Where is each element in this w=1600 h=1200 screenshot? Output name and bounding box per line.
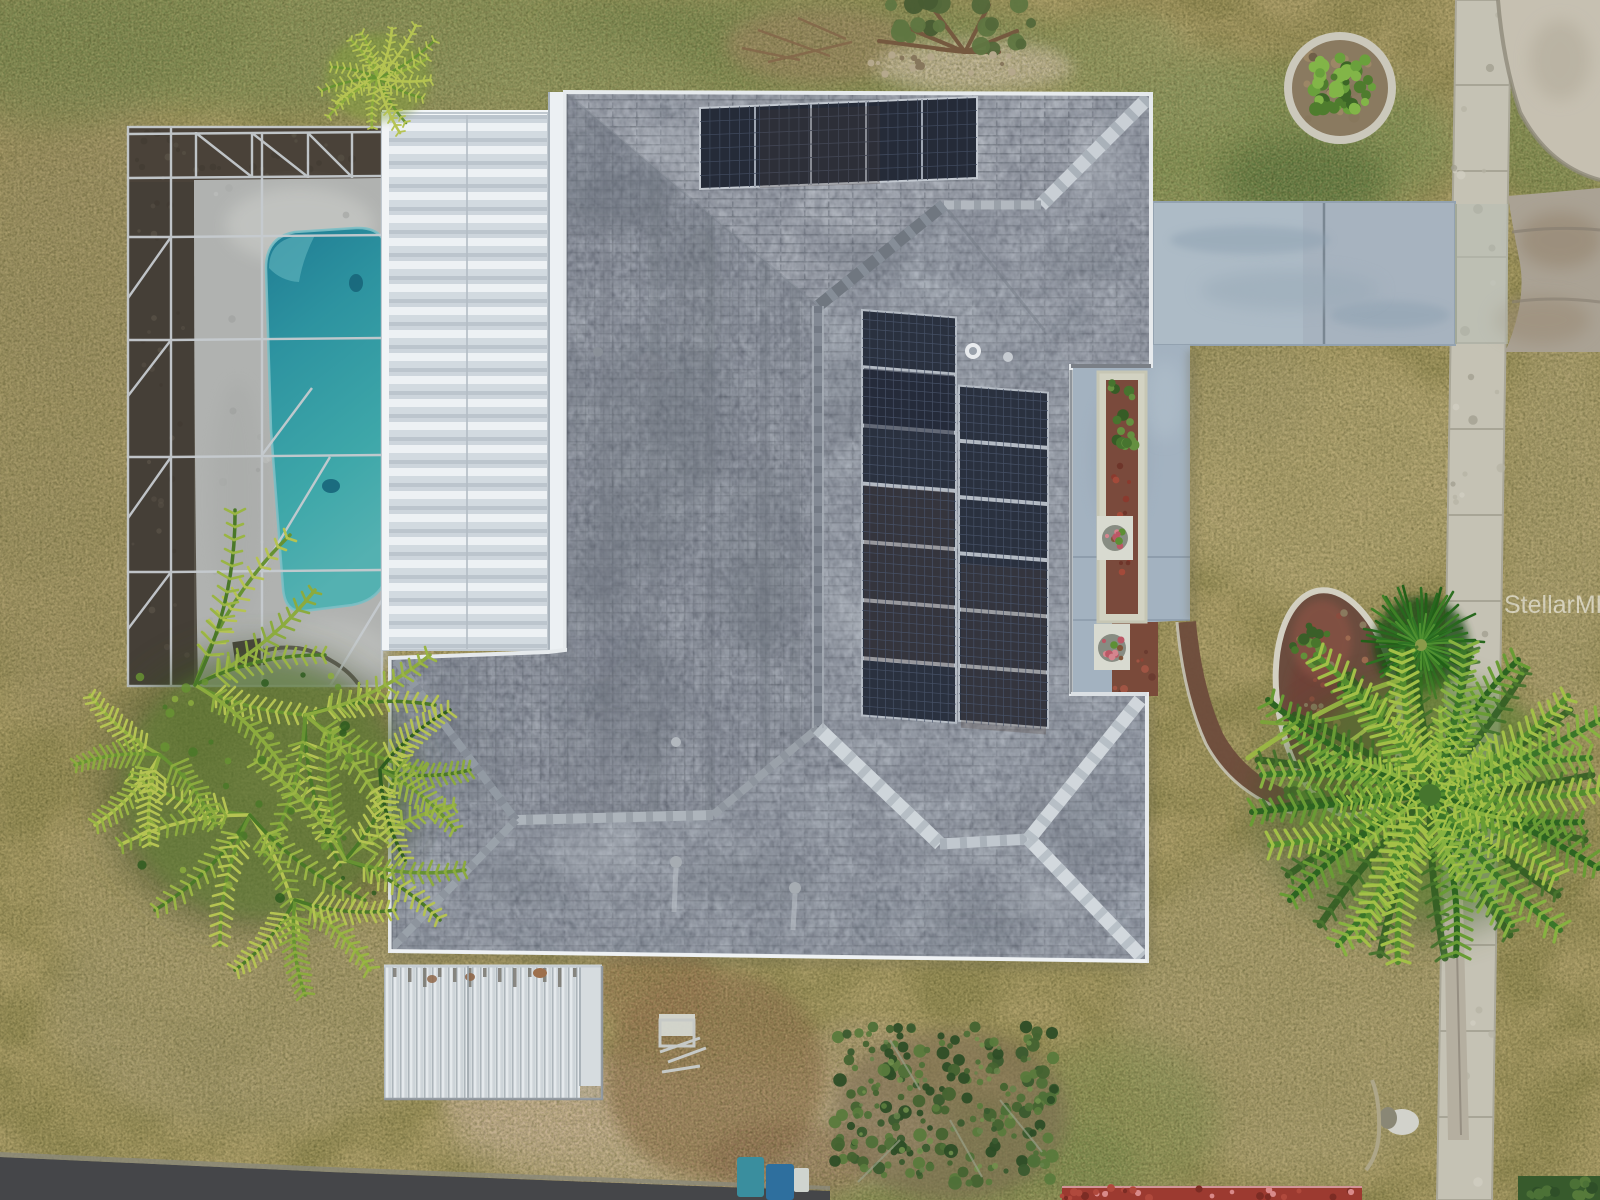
svg-text:StellarMLS: StellarMLS xyxy=(1504,591,1600,619)
